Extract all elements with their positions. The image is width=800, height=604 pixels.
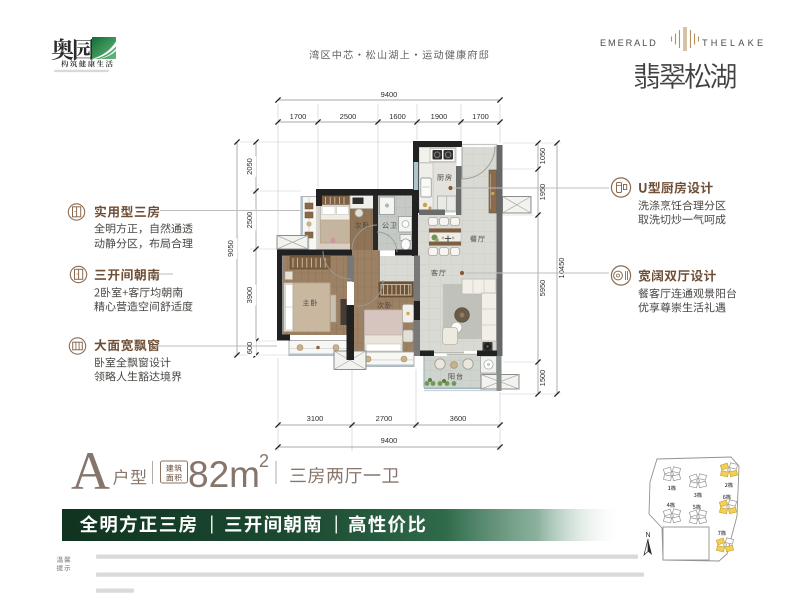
svg-text:3900: 3900 bbox=[245, 287, 254, 304]
svg-text:A: A bbox=[71, 441, 110, 501]
svg-text:1700: 1700 bbox=[290, 112, 307, 121]
svg-text:1700: 1700 bbox=[472, 112, 489, 121]
svg-text:9400: 9400 bbox=[381, 90, 398, 99]
svg-text:3100: 3100 bbox=[307, 414, 324, 423]
svg-text:5950: 5950 bbox=[538, 280, 547, 297]
svg-text:2: 2 bbox=[259, 451, 269, 471]
svg-text:1600: 1600 bbox=[389, 112, 406, 121]
svg-text:N: N bbox=[645, 532, 650, 539]
svg-text:2500: 2500 bbox=[245, 212, 254, 229]
svg-text:2050: 2050 bbox=[245, 158, 254, 175]
svg-text:600: 600 bbox=[245, 342, 254, 355]
svg-text:9050: 9050 bbox=[226, 240, 235, 257]
svg-text:10450: 10450 bbox=[557, 258, 566, 279]
svg-text:EMERALD: EMERALD bbox=[600, 38, 658, 48]
svg-text:2700: 2700 bbox=[376, 414, 393, 423]
svg-text:1900: 1900 bbox=[431, 112, 448, 121]
svg-text:1050: 1050 bbox=[538, 148, 547, 165]
svg-text:1950: 1950 bbox=[538, 184, 547, 201]
svg-text:1500: 1500 bbox=[538, 370, 547, 387]
svg-text:3600: 3600 bbox=[450, 414, 467, 423]
svg-text:82m: 82m bbox=[188, 454, 260, 495]
svg-text:9400: 9400 bbox=[381, 436, 398, 445]
svg-text:2500: 2500 bbox=[340, 112, 357, 121]
svg-text:THELAKE: THELAKE bbox=[702, 38, 766, 48]
